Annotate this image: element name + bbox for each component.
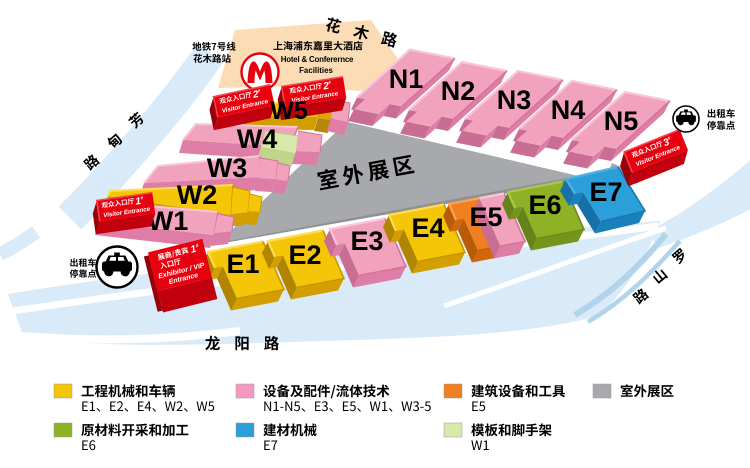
svg-text:N1: N1 [389,64,424,94]
svg-text:W3: W3 [207,153,248,183]
svg-text:E6: E6 [528,190,561,220]
svg-text:W5: W5 [270,97,308,125]
svg-text:N2: N2 [441,76,476,106]
svg-text:Facilities: Facilities [299,66,333,75]
svg-text:N4: N4 [551,95,586,125]
svg-text:E5: E5 [469,202,502,232]
svg-text:E1: E1 [226,249,259,279]
svg-text:E7: E7 [589,177,622,207]
svg-text:E2: E2 [288,240,321,270]
svg-text:Hotel & Conferernce: Hotel & Conferernce [281,55,354,64]
svg-text:N5: N5 [604,106,639,136]
svg-text:N3: N3 [497,85,532,115]
svg-text:W4: W4 [237,124,278,154]
svg-text:E4: E4 [411,213,444,243]
svg-text:E3: E3 [350,226,383,256]
